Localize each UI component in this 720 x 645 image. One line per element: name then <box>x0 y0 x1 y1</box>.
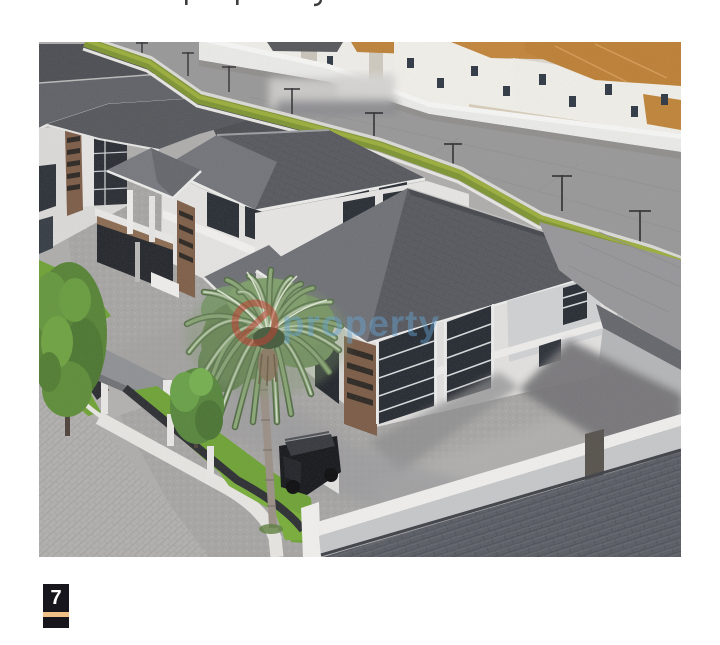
svg-text:property: property <box>282 303 440 344</box>
